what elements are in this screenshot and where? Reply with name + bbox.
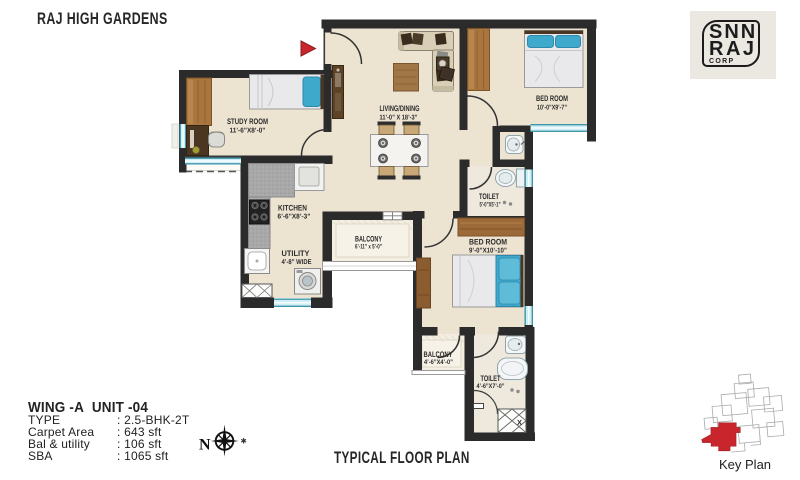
svg-text:5’-0”X5’-1”: 5’-0”X5’-1” (480, 202, 501, 209)
svg-text:11’-6”X8’-0”: 11’-6”X8’-0” (230, 128, 266, 135)
svg-text:BED ROOM: BED ROOM (536, 94, 568, 103)
svg-text:BALCONY: BALCONY (355, 235, 382, 244)
svg-text:TOILET: TOILET (479, 192, 499, 201)
svg-text:X: X (517, 418, 522, 427)
svg-text:6’-6”X8’-3”: 6’-6”X8’-3” (278, 214, 311, 221)
svg-text:BED ROOM: BED ROOM (469, 238, 507, 247)
svg-text:BALCONY: BALCONY (424, 350, 453, 359)
svg-text:UTILITY: UTILITY (282, 249, 311, 258)
svg-text:6’-11” x 5’-0”: 6’-11” x 5’-0” (355, 243, 382, 250)
svg-text:4’-6”X4’-0”: 4’-6”X4’-0” (424, 359, 453, 366)
svg-text:4’-8” WIDE: 4’-8” WIDE (282, 259, 312, 266)
svg-text:11’-0” X 18’-3”: 11’-0” X 18’-3” (380, 114, 418, 121)
svg-text:TOILET: TOILET (481, 374, 501, 383)
svg-text:9’-0”X10’-10”: 9’-0”X10’-10” (469, 248, 507, 255)
svg-text:KITCHEN: KITCHEN (278, 204, 307, 213)
svg-text:STUDY ROOM: STUDY ROOM (227, 117, 268, 126)
svg-text:10’-0”X9’-7”: 10’-0”X9’-7” (537, 105, 567, 112)
svg-text:LIVING/DINING: LIVING/DINING (380, 104, 420, 113)
svg-text:4’-6”X7’-0”: 4’-6”X7’-0” (477, 383, 505, 390)
